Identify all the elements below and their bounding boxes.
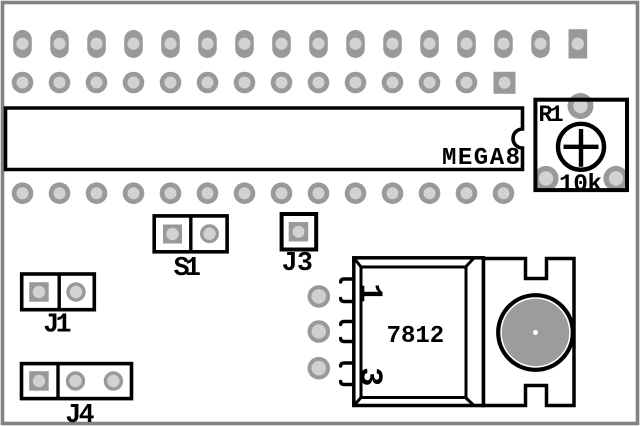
svg-text:7812: 7812 [387, 323, 445, 350]
svg-text:3: 3 [351, 367, 388, 386]
svg-text:1: 1 [351, 283, 388, 302]
svg-text:R1: R1 [539, 102, 563, 128]
svg-text:10k: 10k [559, 172, 602, 199]
svg-text:S1: S1 [174, 253, 200, 283]
svg-text:MEGA8: MEGA8 [442, 145, 522, 172]
svg-text:J4: J4 [65, 400, 94, 426]
svg-text:J3: J3 [282, 248, 313, 278]
svg-text:J1: J1 [43, 310, 70, 340]
